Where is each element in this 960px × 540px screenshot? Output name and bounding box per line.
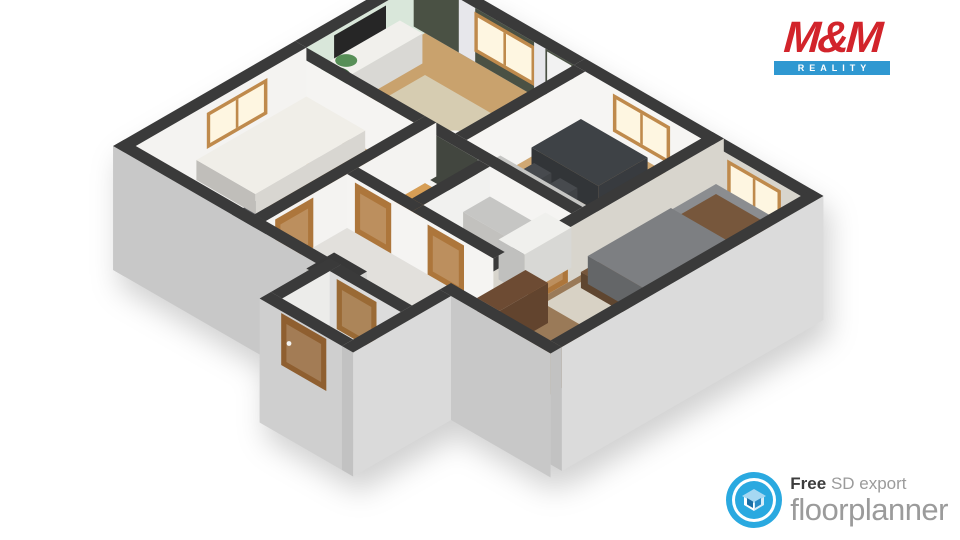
floorplanner-brand: floorplanner <box>790 494 948 525</box>
floorplanner-free-label: Free <box>790 474 826 493</box>
window-living-mullion <box>503 32 506 66</box>
floorplanner-text: Free SD export floorplanner <box>790 475 948 525</box>
window-bedroom-1-mullion <box>236 99 239 129</box>
wall-ext-right-end-cap <box>551 341 562 472</box>
curtain-left <box>459 0 475 62</box>
mm-reality-title: M&M <box>773 18 892 58</box>
mm-reality-subtitle: REALITY <box>793 61 872 75</box>
mm-reality-bar: REALITY <box>774 61 890 75</box>
floorplanner-tagline: Free SD export <box>790 475 948 492</box>
wall-ext-step-cap <box>342 346 353 477</box>
floorplanner-house-icon <box>726 472 782 528</box>
house-glyph <box>741 488 767 512</box>
mm-reality-logo: M&M REALITY <box>774 18 890 75</box>
floorplan-3d <box>0 0 960 540</box>
window-kitchen-mullion <box>640 113 643 145</box>
floorplanner-sd-export: SD export <box>831 474 907 493</box>
floorplanner-icon-core <box>735 481 773 519</box>
door-entry-main-knob <box>287 341 292 346</box>
floorplanner-icon-ring <box>732 478 776 522</box>
window-bedroom-2-mullion <box>753 178 756 210</box>
plant-living-top <box>335 54 357 67</box>
floorplanner-logo: Free SD export floorplanner <box>726 472 948 528</box>
